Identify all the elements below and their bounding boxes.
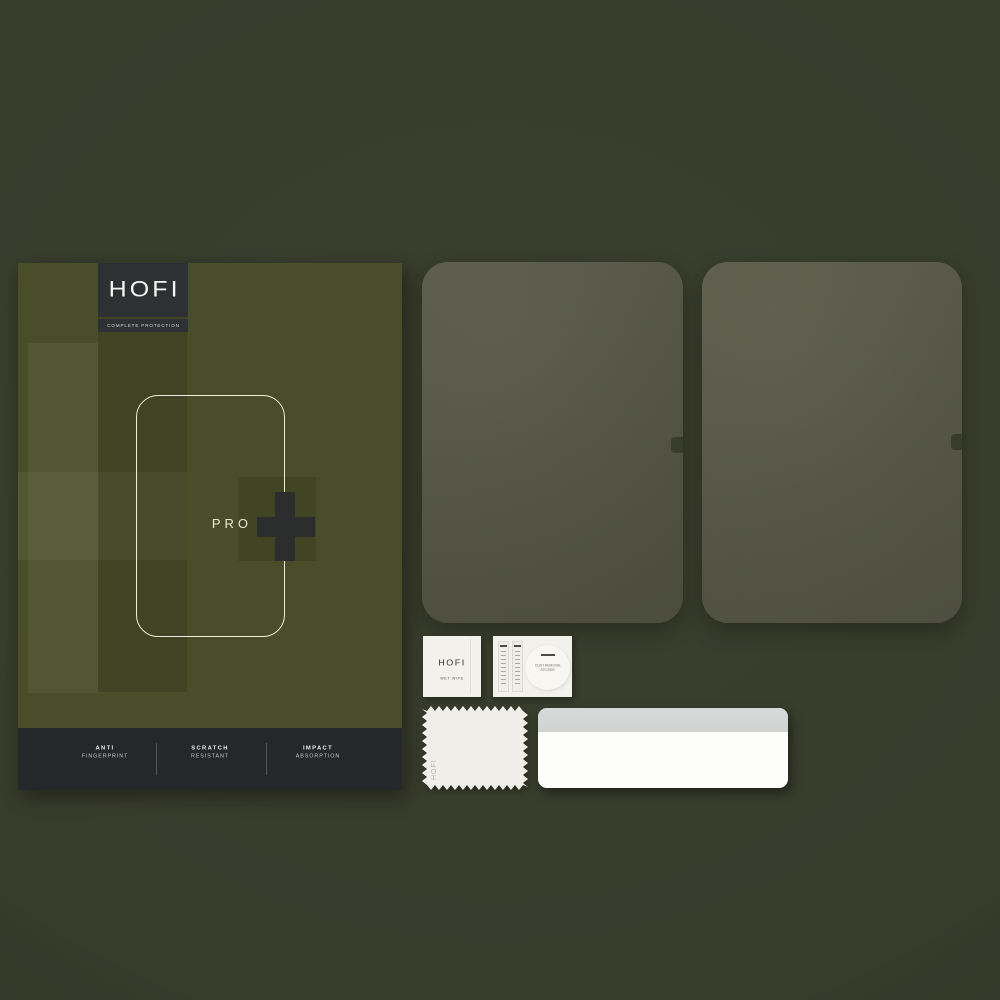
feature-divider [266,743,267,775]
tablet-outline-graphic [136,395,285,637]
cleaning-cloth: HOFI [422,706,528,790]
tagline-plate: COMPLETE PROTECTION [98,319,188,332]
guide-sticker-strip [498,641,509,692]
dust-removal-sticker: DUST REMOVAL STICKER [525,645,570,690]
feature-scratch-resistant: SCRATCH RESISTANT [191,745,229,759]
strip-dash [500,645,507,647]
brand-logo: HOFI [108,277,180,303]
strip-dash [514,645,521,647]
camera-notch-icon [671,437,683,453]
cloth-brand: HOFI [431,748,438,780]
wet-wipe-label: WET WIPE [434,677,470,681]
packet-crease [470,639,471,694]
feature-anti-fingerprint: ANTI FINGERPRINT [82,745,129,759]
brand-logo-plate: HOFI [98,263,188,317]
sticker-packet: DUST REMOVAL STICKER [493,636,572,697]
feature-divider [156,743,157,775]
cloth-body: HOFI [422,706,528,790]
applicator-card [538,708,788,788]
brand-tagline: COMPLETE PROTECTION [107,323,180,328]
series-label: PRO [212,516,252,531]
feature-impact-absorption: IMPACT ABSORPTION [296,745,340,759]
wet-wipe-packet: HOFI WET WIPE [423,636,481,697]
glass-protector-left [422,262,683,623]
feature-bar: ANTI FINGERPRINT SCRATCH RESISTANT IMPAC… [18,728,402,790]
strip-fine-print [515,651,520,685]
product-box: HOFI COMPLETE PROTECTION PRO ANTI FINGER… [18,263,402,790]
dust-sticker-label: DUST REMOVAL STICKER [535,664,560,673]
glass-sheen [422,262,683,623]
camera-notch-icon [951,434,962,450]
glass-protector-right [702,262,962,623]
wet-wipe-brand: HOFI [423,659,481,668]
guide-sticker-strip [512,641,523,692]
strip-fine-print [501,651,506,685]
applicator-card-strip [538,708,788,732]
sticker-dash [541,654,555,656]
glass-sheen [702,262,962,623]
